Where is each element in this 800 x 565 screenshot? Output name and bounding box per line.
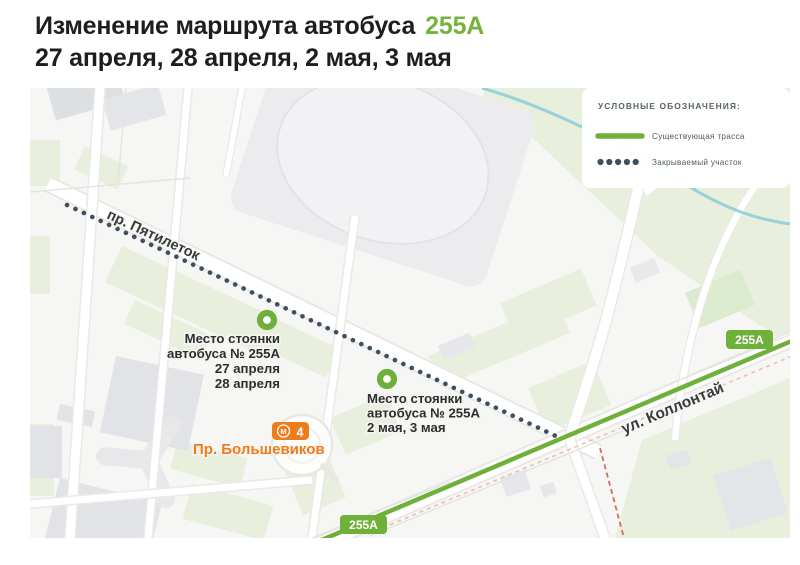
title-dates: 27 апреля, 28 апреля, 2 мая, 3 мая bbox=[35, 42, 484, 74]
route-badge-label: 255А bbox=[349, 518, 378, 532]
title-text: Изменение маршрута автобуса bbox=[35, 12, 415, 40]
map-canvas: пр. Пятилеток ул. Коллонтай 255А 255А Ме… bbox=[30, 88, 790, 538]
route-number: 255А bbox=[425, 12, 484, 40]
page-header: Изменение маршрута автобуса255А 27 апрел… bbox=[35, 10, 484, 74]
stop-marker-icon bbox=[260, 313, 274, 327]
metro-logo: М bbox=[280, 427, 286, 436]
legend-title: УСЛОВНЫЕ ОБОЗНАЧЕНИЯ: bbox=[598, 101, 741, 111]
svg-text:2 мая, 3 мая: 2 мая, 3 мая bbox=[367, 420, 446, 435]
page-title: Изменение маршрута автобуса255А bbox=[35, 10, 484, 42]
metro-line-number: 4 bbox=[297, 426, 304, 440]
legend-item-closed: Закрываемый участок bbox=[652, 158, 742, 167]
route-badge-label: 255А bbox=[735, 333, 764, 347]
stop-marker-icon bbox=[380, 372, 394, 386]
infographic-page: Изменение маршрута автобуса255А 27 апрел… bbox=[0, 0, 800, 565]
svg-text:28 апреля: 28 апреля bbox=[215, 376, 280, 391]
svg-text:Место стоянки: Место стоянки bbox=[367, 391, 462, 406]
metro-icon: М 4 bbox=[272, 422, 309, 440]
map: пр. Пятилеток ул. Коллонтай 255А 255А Ме… bbox=[30, 88, 790, 538]
svg-text:автобуса № 255А: автобуса № 255А bbox=[367, 406, 480, 421]
svg-text:автобуса № 255А: автобуса № 255А bbox=[167, 346, 280, 361]
svg-text:27 апреля: 27 апреля bbox=[215, 361, 280, 376]
legend: УСЛОВНЫЕ ОБОЗНАЧЕНИЯ: Существующая трасс… bbox=[582, 88, 790, 188]
metro-station-label: Пр. Большевиков bbox=[193, 441, 325, 458]
route-badge-top: 255А bbox=[726, 330, 773, 349]
svg-text:Место стоянки: Место стоянки bbox=[185, 331, 280, 346]
route-badge-bottom: 255А bbox=[340, 515, 387, 534]
legend-item-existing: Существующая трасса bbox=[652, 132, 745, 141]
